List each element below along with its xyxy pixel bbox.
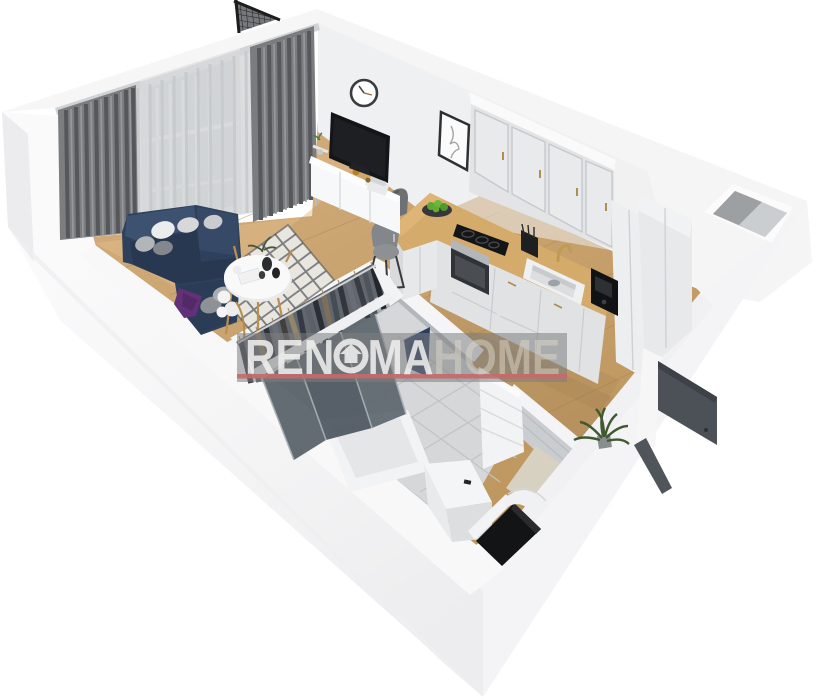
svg-text:HOME: HOME [433,330,560,385]
svg-text:REN: REN [245,330,334,385]
svg-text:MA: MA [368,330,434,385]
